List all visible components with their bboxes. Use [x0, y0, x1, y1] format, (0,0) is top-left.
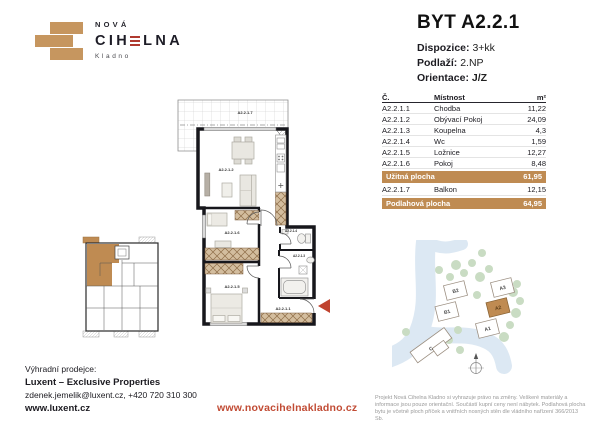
orientace-row: Orientace: J/Z: [417, 71, 495, 86]
toilet: [298, 234, 311, 244]
room-table: Č. Místnost m² A2.2.1.1Chodba11,22 A2.2.…: [382, 92, 546, 211]
logo-main-text: CIH LNA: [95, 33, 183, 49]
seller-website-link[interactable]: www.luxent.cz: [25, 402, 197, 415]
seller-name: Luxent – Exclusive Properties: [25, 376, 197, 389]
building-key-plan: [82, 236, 162, 338]
podlazi-row: Podlaží: 2.NP: [417, 56, 495, 71]
tv-board: [205, 173, 210, 196]
brick-logo-icon: [35, 22, 85, 62]
table-row: A2.2.1.4Wc1,59: [382, 136, 546, 147]
seller-contact[interactable]: zdenek.jemelik@luxent.cz, +420 720 310 3…: [25, 389, 197, 402]
label-pokoj: A2.2.1.6: [224, 230, 240, 235]
north-compass-icon: [468, 353, 484, 374]
table-row: A2.2.1.2Obývací Pokoj24,09: [382, 114, 546, 125]
entrance-arrow-icon: [318, 299, 330, 313]
logo-top-text: NOVÁ: [95, 20, 183, 29]
table-header: Č. Místnost m²: [382, 92, 546, 103]
coffee-table: [222, 183, 232, 197]
unit-title: BYT A2.2.1: [417, 12, 520, 34]
site-plan: B2 B1 A3 A2 A1 C: [392, 240, 592, 385]
unit-info: Dispozice: 3+kk Podlaží: 2.NP Orientace:…: [417, 41, 495, 86]
seller-label: Výhradní prodejce:: [25, 363, 197, 376]
desk: [215, 241, 231, 248]
podlahova-plocha-row: Podlahová plocha64,95: [382, 198, 546, 210]
label-loznice: A2.2.1.5: [224, 284, 240, 289]
dispozice-row: Dispozice: 3+kk: [417, 41, 495, 56]
logo-sub-text: Kladno: [95, 53, 183, 60]
label-obyvaci: A2.2.1.2: [218, 167, 234, 172]
disclaimer-text: Projekt Nová Cihelna Kladno si vyhrazuje…: [375, 395, 587, 423]
seller-block: Výhradní prodejce: Luxent – Exclusive Pr…: [25, 363, 197, 415]
table-row-balkon: A2.2.1.7Balkon12,15: [382, 185, 546, 196]
bathtub: [281, 278, 308, 296]
uzitna-plocha-row: Užitná plocha61,95: [382, 171, 546, 183]
stair-core: [115, 246, 129, 259]
label-wc: A2.2.1.4: [285, 229, 297, 233]
table-row: A2.2.1.1Chodba11,22: [382, 103, 546, 114]
logo: NOVÁ CIH LNA Kladno: [35, 20, 215, 66]
project-website-link[interactable]: www.novacihelnakladno.cz: [217, 402, 357, 414]
logo-e-bars-icon: [130, 36, 140, 47]
table-row: A2.2.1.5Ložnice12,27: [382, 147, 546, 158]
label-balkon: A2.2.1.7: [237, 110, 253, 115]
label-koupelna: A2.2.1.3: [293, 254, 305, 258]
label-chodba: A2.2.1.1: [275, 306, 291, 311]
washbasin: [307, 257, 315, 263]
table-row: A2.2.1.3Koupelna4,3: [382, 125, 546, 136]
page: NOVÁ CIH LNA Kladno BYT A2.2.1 Dispozice…: [0, 0, 600, 423]
table-row: A2.2.1.6Pokoj8,48: [382, 158, 546, 169]
